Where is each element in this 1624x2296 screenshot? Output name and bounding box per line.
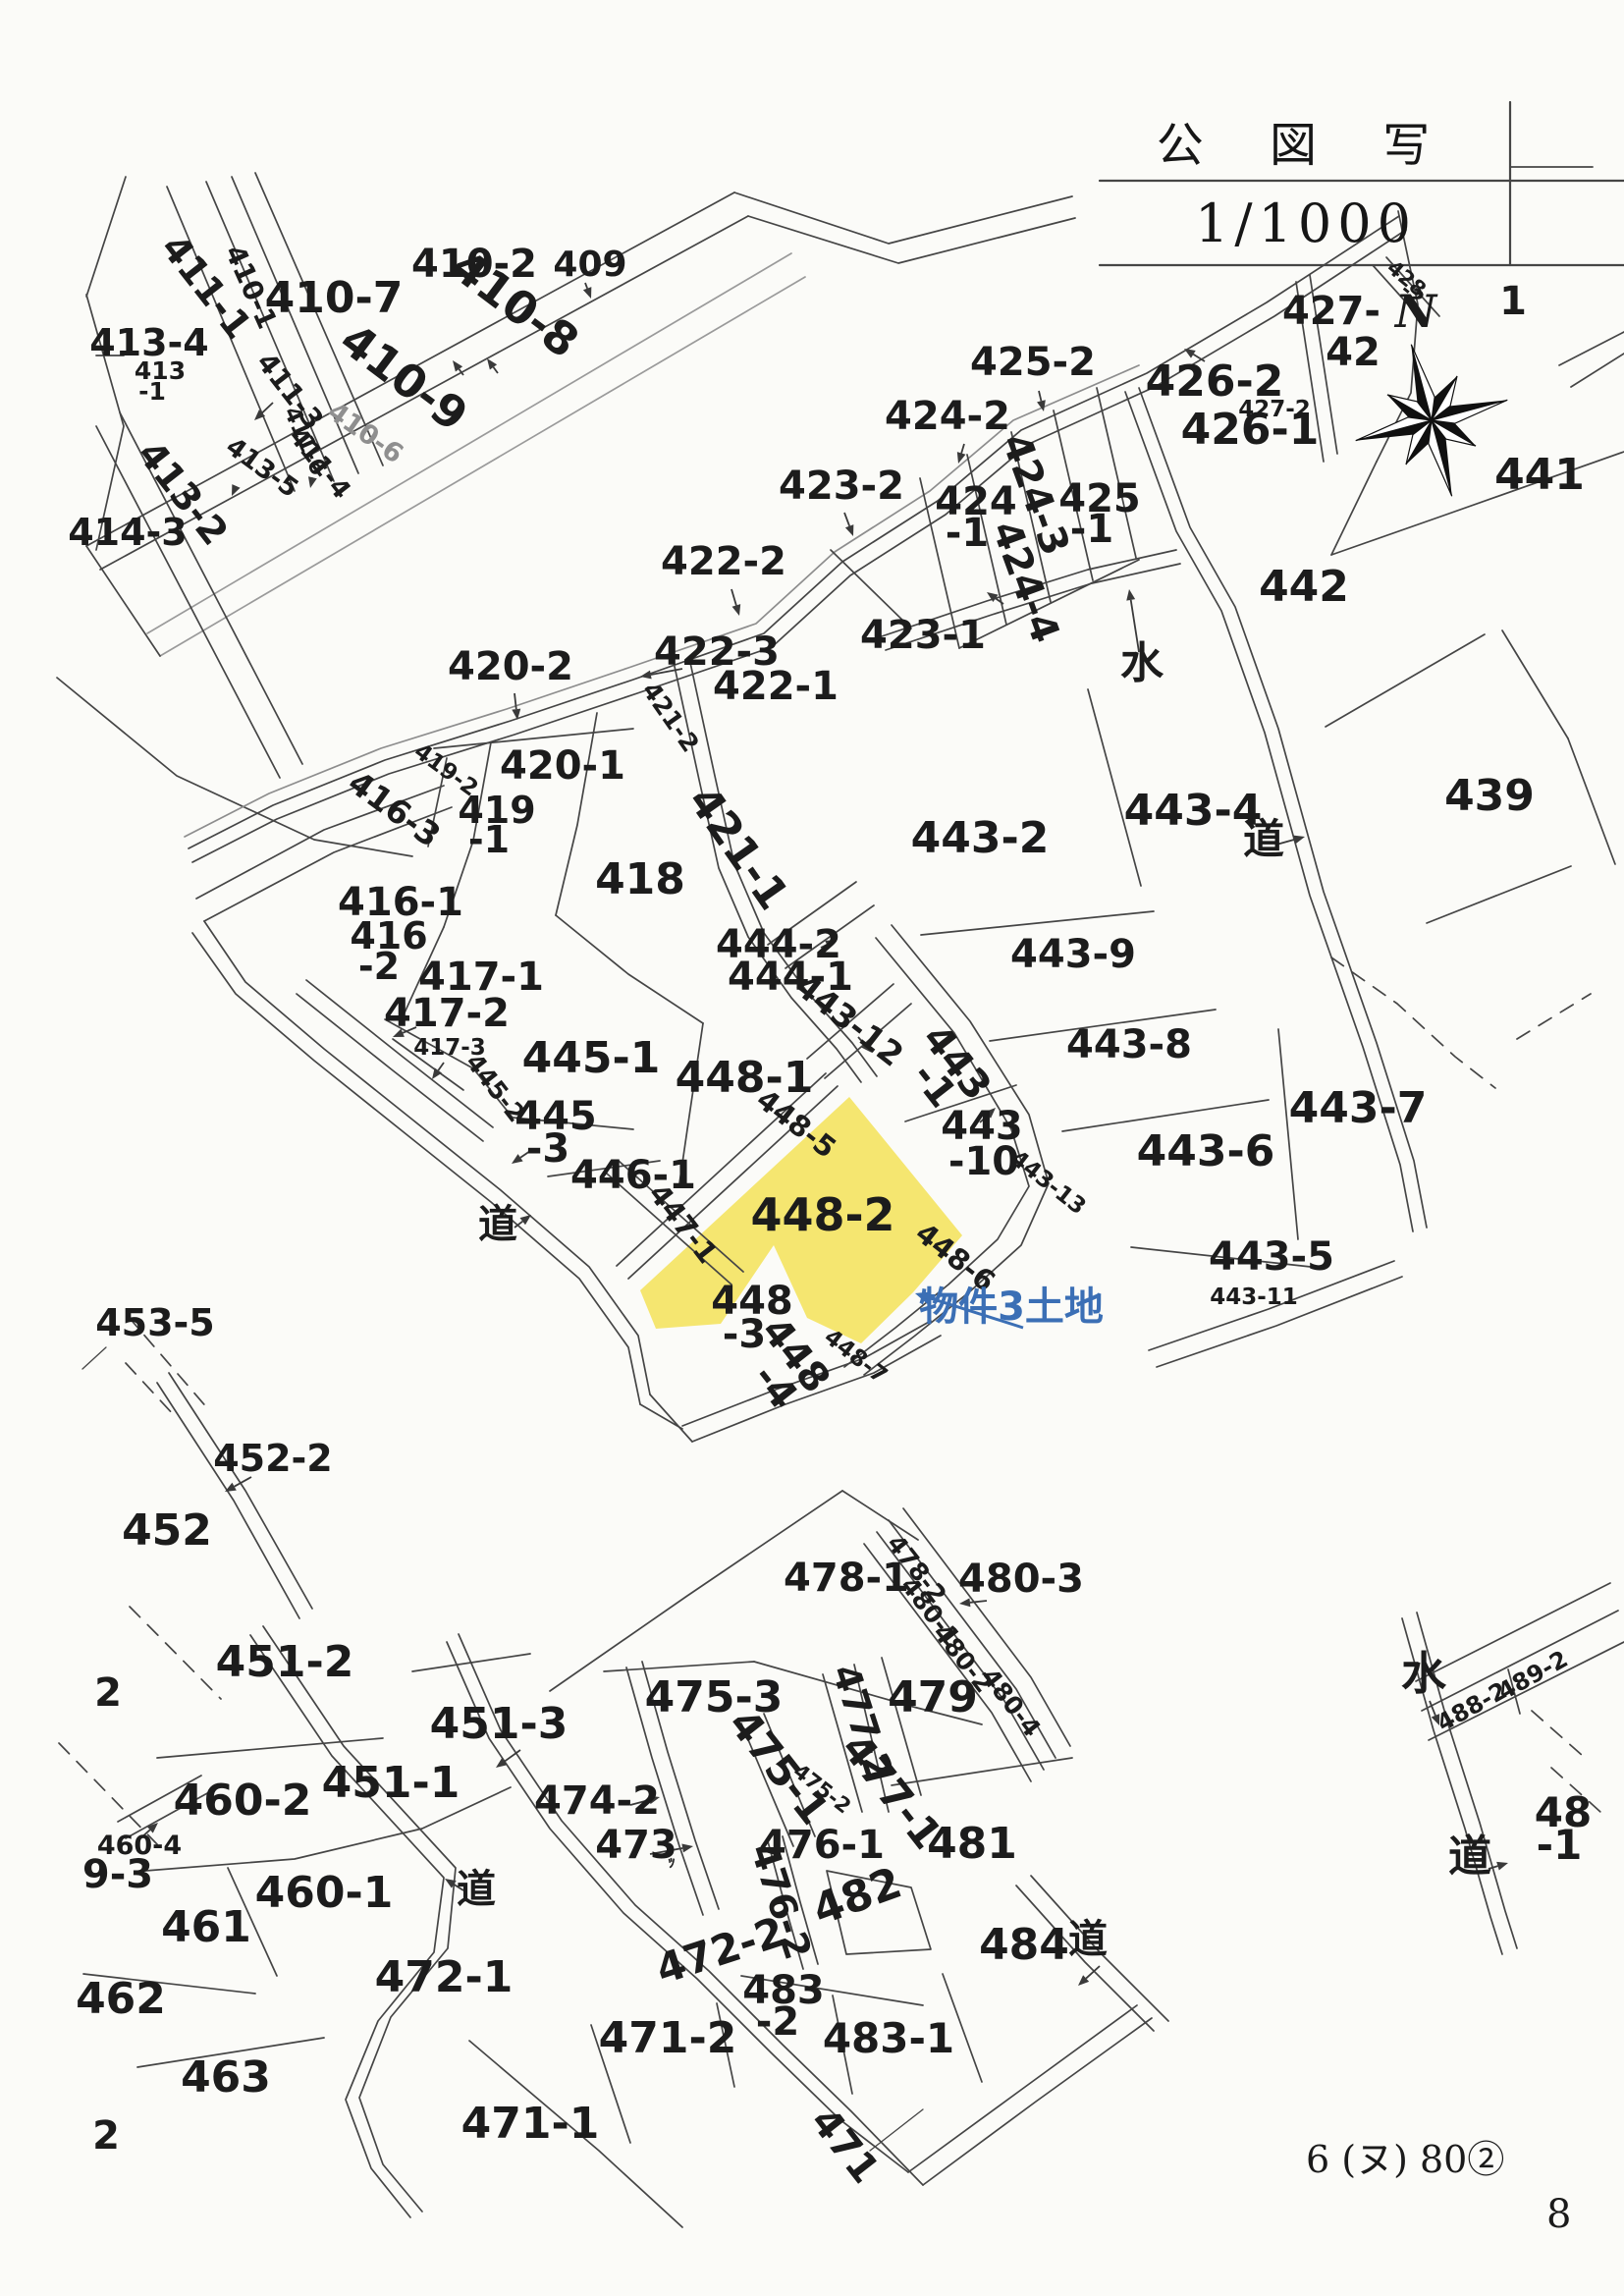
- parcel-label: 453-5: [95, 1301, 215, 1344]
- boundary-line: [1532, 1711, 1583, 1756]
- parcel-label: 443-9: [1010, 932, 1136, 977]
- parcel-label: 414-3: [68, 511, 188, 554]
- boundary-line: [892, 1758, 1072, 1785]
- leader-arrowhead: [487, 358, 497, 370]
- leader-arrowhead: [845, 524, 853, 536]
- leader-arrowhead: [681, 1844, 693, 1853]
- parcel-label: -2: [756, 1999, 799, 2045]
- parcel-label: 463: [181, 2052, 271, 2103]
- leader-arrowhead: [512, 1154, 523, 1164]
- parcel-label: 482: [806, 1858, 908, 1936]
- leader-arrowhead: [1496, 1862, 1508, 1871]
- water-label: 水: [1401, 1647, 1447, 1700]
- parcel-label: 452-2: [213, 1437, 333, 1480]
- parcel-label: 439: [1444, 771, 1535, 821]
- map-scale: 1/1000: [1100, 192, 1512, 254]
- boundary-line: [86, 177, 126, 297]
- parcel-label: 473: [595, 1823, 677, 1868]
- leader-line: [731, 589, 736, 605]
- parcel-label: 416-3: [342, 763, 448, 855]
- parcel-label: 448-1: [676, 1053, 814, 1103]
- boundary-line: [1278, 1029, 1298, 1239]
- boundary-line: [82, 1347, 106, 1369]
- parcel-label: 443-6: [1137, 1126, 1275, 1176]
- boundary-line: [1568, 738, 1615, 864]
- parcel-label: 443-4: [1124, 786, 1263, 836]
- leader-arrowhead: [432, 1067, 442, 1079]
- water-label: 水: [1120, 638, 1164, 688]
- parcel-label: 410-7: [265, 273, 404, 323]
- boundary-line: [1427, 866, 1571, 923]
- boundary-line: [126, 1363, 175, 1416]
- boundary-line: [1502, 630, 1568, 738]
- parcel-label: 1: [1499, 279, 1527, 324]
- parcel-label: 443-2: [911, 813, 1050, 863]
- boundary-line: [169, 1373, 312, 1609]
- boundary-line: [130, 1607, 221, 1699]
- leader-arrowhead: [1126, 589, 1135, 601]
- parcel-label: 423-2: [779, 464, 904, 509]
- leader-line: [1039, 391, 1041, 401]
- parcel-label: 451-1: [322, 1758, 460, 1808]
- compass-north-label: N: [1393, 285, 1438, 338]
- parcel-label: 441: [1494, 450, 1585, 500]
- parcel-label: 484: [979, 1920, 1069, 1970]
- parcel-label: -1: [1070, 507, 1113, 552]
- leader-arrowhead: [583, 287, 591, 299]
- parcel-label: 478-1: [784, 1556, 909, 1601]
- parcel-label: 460-1: [255, 1868, 394, 1918]
- leader-line: [262, 403, 273, 412]
- page-number: 8: [1546, 2192, 1571, 2237]
- boundary-line: [157, 1383, 299, 1618]
- parcel-label: 420-1: [500, 743, 625, 789]
- cadastral-map: 411-1410-1410-7410-2409410-8410-9410-641…: [0, 0, 1624, 2296]
- parcel-label: 452: [122, 1505, 212, 1556]
- parcel-label: 471-2: [599, 2013, 737, 2063]
- boundary-line: [870, 2109, 923, 2151]
- parcel-label: 423-1: [860, 613, 986, 658]
- parcel-label: 448-2: [750, 1188, 894, 1241]
- parcel-label: 472-1: [375, 1952, 514, 2002]
- parcel-label: 445-1: [522, 1033, 661, 1083]
- parcel-label: -3: [526, 1126, 569, 1172]
- parcel-label: 9-3: [82, 1852, 153, 1897]
- boundary-line: [157, 1738, 383, 1758]
- parcel-label: 42: [1326, 330, 1380, 375]
- leader-arrowhead: [640, 671, 652, 680]
- parcel-label: 422-1: [713, 664, 839, 709]
- parcel-label: ｯ: [668, 1852, 676, 1871]
- parcel-label: -1: [946, 511, 989, 556]
- cadastral-map-sheet: { "title_block": { "line1": "公 図 写", "li…: [0, 0, 1624, 2296]
- parcel-label: 2: [94, 1670, 122, 1716]
- parcel-label: 480-3: [958, 1557, 1084, 1602]
- parcel-label: 443-5: [1209, 1234, 1334, 1280]
- parcel-label: 480-4: [976, 1663, 1047, 1742]
- parcel-label: 417-2: [384, 991, 510, 1036]
- parcel-label: 421-1: [678, 777, 798, 919]
- parcel-label: 462: [76, 1974, 166, 2024]
- boundary-line: [57, 678, 412, 856]
- boundary-line: [923, 2018, 1152, 2185]
- boundary-line: [734, 192, 1072, 244]
- boundary-line: [263, 1626, 456, 2212]
- map-title: 公 図 写: [1100, 106, 1512, 175]
- parcel-label: 425-2: [970, 340, 1096, 385]
- leader-arrowhead: [453, 360, 462, 372]
- road-label: 道: [478, 1202, 517, 1247]
- boundary-line: [1571, 354, 1624, 387]
- leader-line: [1086, 1966, 1100, 1979]
- parcel-label: 471-1: [461, 2099, 600, 2149]
- leader-arrowhead: [520, 1215, 531, 1225]
- boundary-line: [650, 1394, 692, 1442]
- leader-line: [996, 598, 1003, 604]
- parcel-label: -1: [1537, 1821, 1583, 1869]
- road-label: 道: [457, 1867, 496, 1912]
- road-label: 道: [1448, 1831, 1491, 1882]
- property-annotation: 物件3土地: [919, 1285, 1104, 1330]
- parcel-label: 421-2: [636, 677, 705, 757]
- parcel-label: 479: [888, 1672, 978, 1722]
- boundary-line: [1517, 994, 1591, 1039]
- boundary-line: [556, 915, 703, 1023]
- parcel-label: 424-2: [885, 394, 1010, 439]
- boundary-line: [86, 546, 160, 656]
- parcel-label: -1: [138, 377, 166, 406]
- parcel-label: 422-2: [661, 539, 786, 584]
- road-label: 道: [1068, 1917, 1108, 1962]
- parcel-label: 461: [161, 1902, 251, 1952]
- boundary-line: [1331, 957, 1495, 1088]
- parcel-label: 451-3: [430, 1699, 568, 1749]
- parcel-label: 2: [92, 2113, 120, 2159]
- parcel-label: 474-2: [534, 1778, 660, 1824]
- leader-line: [961, 444, 964, 453]
- boundary-line: [250, 1635, 444, 2217]
- leader-line: [844, 513, 849, 526]
- parcel-label: 409: [553, 245, 626, 285]
- leader-arrowhead: [496, 1758, 508, 1768]
- parcel-label: 460-2: [174, 1776, 312, 1826]
- parcel-label: 451-2: [216, 1637, 354, 1687]
- leader-arrowhead: [732, 604, 741, 616]
- parcel-label: 443-11: [1210, 1285, 1298, 1310]
- leader-line: [438, 1063, 444, 1070]
- parcel-label: 420-2: [448, 644, 573, 689]
- parcel-label: 483-1: [823, 2014, 954, 2062]
- parcel-label: 481: [927, 1819, 1017, 1869]
- parcel-label: -2: [358, 945, 400, 988]
- boundary-line: [1326, 634, 1485, 727]
- parcel-label: 443-7: [1289, 1083, 1428, 1133]
- parcel-label: -1: [468, 818, 510, 861]
- parcel-label: 426-1: [1181, 405, 1320, 455]
- parcel-label: 443-8: [1066, 1022, 1192, 1067]
- boundary-line: [748, 216, 1075, 263]
- parcel-label: 427-: [1282, 289, 1380, 334]
- parcel-label: 418: [595, 854, 685, 904]
- sheet-reference: 6 (ヌ) 80②: [1306, 2129, 1581, 2183]
- leader-line: [494, 367, 498, 373]
- parcel-label: 442: [1259, 562, 1349, 612]
